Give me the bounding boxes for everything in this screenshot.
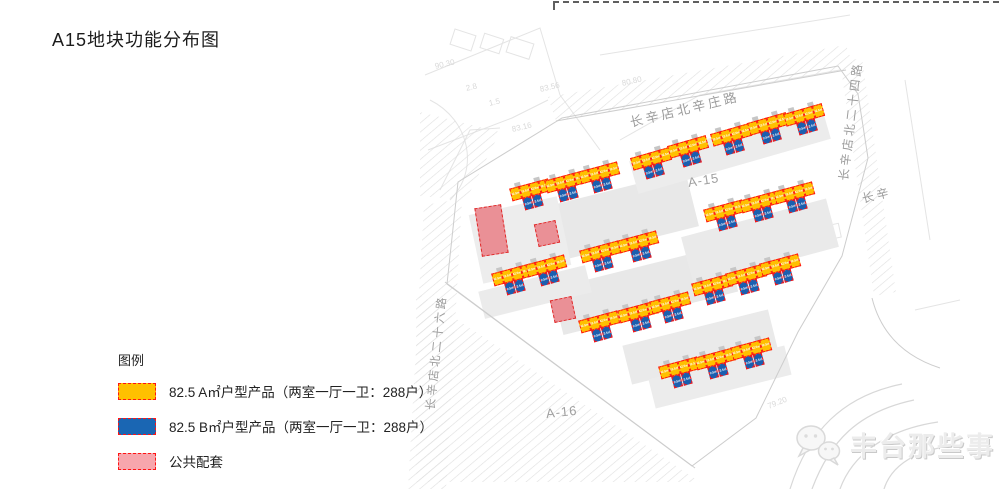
unit-area-label: 82.5㎡: [783, 273, 793, 278]
unit-area-label: 82.5㎡: [705, 296, 715, 301]
unit-area-label: 82.5㎡: [794, 113, 804, 118]
unit-area-label: 82.5㎡: [736, 273, 746, 278]
unit-area-label: 82.5㎡: [702, 283, 712, 288]
public-facility-block: [534, 220, 560, 247]
unit-area-label: 82.5㎡: [774, 194, 784, 199]
unit-area-label: 82.5㎡: [789, 258, 799, 263]
unit-area-label: 82.5㎡: [773, 276, 783, 281]
unit-area-label: 82.5㎡: [734, 143, 744, 148]
unit-area-label: 82.5㎡: [724, 207, 734, 212]
unit-area-label: 82.5㎡: [641, 157, 651, 162]
unit-area-label: 82.5㎡: [770, 263, 780, 268]
unit-area-label: 82.5㎡: [750, 200, 760, 205]
unit-area-label: 82.5㎡: [679, 364, 689, 369]
unit-block: 82.5㎡: [600, 176, 612, 191]
unit-area-label: 82.5㎡: [603, 260, 613, 265]
unit-area-label: 82.5㎡: [784, 116, 794, 121]
unit-block: 82.5㎡: [725, 214, 737, 229]
unit-area-label: 82.5㎡: [565, 178, 575, 183]
unit-area-label: 82.5㎡: [539, 277, 549, 282]
unit-area-label: 82.5㎡: [682, 376, 692, 381]
unit-block: 82.5㎡: [802, 182, 814, 197]
unit-area-label: 82.5㎡: [739, 286, 749, 291]
unit-area-label: 82.5㎡: [523, 201, 533, 206]
unit-area-label: 82.5㎡: [763, 210, 773, 215]
unit-area-label: 82.5㎡: [803, 186, 813, 191]
unit-area-label: 82.5㎡: [644, 170, 654, 175]
legend-item: 公共配套: [118, 451, 433, 471]
unit-area-label: 82.5㎡: [592, 333, 602, 338]
unit-area-label: 82.5㎡: [536, 264, 546, 269]
unit-area-label: 82.5㎡: [753, 213, 763, 218]
wechat-logo-icon: [793, 422, 843, 466]
unit-area-label: 82.5㎡: [804, 111, 814, 116]
unit-area-label: 82.5㎡: [751, 345, 761, 350]
unit-area-label: 82.5㎡: [748, 125, 758, 130]
legend-swatch: [118, 453, 156, 470]
unit-area-label: 82.5㎡: [717, 222, 727, 227]
unit-area-label: 82.5㎡: [660, 301, 670, 306]
unit-block: 82.5㎡: [600, 325, 612, 340]
unit-area-label: 82.5㎡: [641, 320, 651, 325]
unit-area-label: 82.5㎡: [754, 357, 764, 362]
unit-area-label: 82.5㎡: [654, 167, 664, 172]
unit-area-label: 82.5㎡: [638, 238, 648, 243]
unit-area-label: 82.5㎡: [545, 183, 555, 188]
unit-area-label: 82.5㎡: [761, 135, 771, 140]
unit-block: 82.5㎡: [781, 268, 793, 283]
legend-label: 82.5 A㎡户型产品（两室一厅一卫：288户）: [169, 381, 432, 401]
legend-label: 82.5 B㎡户型产品（两室一厅一卫：288户）: [169, 416, 433, 436]
unit-area-label: 82.5㎡: [502, 273, 512, 278]
unit-area-label: 82.5㎡: [731, 350, 741, 355]
unit-block: 82.5㎡: [716, 362, 728, 377]
unit-block: 82.5㎡: [652, 162, 665, 177]
unit-block: 82.5㎡: [805, 118, 818, 133]
unit-block: 82.5㎡: [795, 196, 807, 211]
unit-area-label: 82.5㎡: [807, 123, 817, 128]
unit-area-label: 82.5㎡: [727, 219, 737, 224]
unit-area-label: 82.5㎡: [780, 261, 790, 266]
unit-area-label: 82.5㎡: [530, 186, 540, 191]
watermark-text: 丰台那些事: [850, 425, 995, 464]
unit-block: 82.5㎡: [759, 338, 771, 353]
unit-block: 82.5㎡: [639, 245, 651, 260]
unit-block: 82.5㎡: [752, 352, 764, 367]
unit-area-label: 82.5㎡: [515, 283, 525, 288]
unit-area-label: 82.5㎡: [712, 281, 722, 286]
unit-area-label: 82.5㎡: [651, 155, 661, 160]
unit-area-label: 82.5㎡: [784, 191, 794, 196]
unit-area-label: 82.5㎡: [746, 271, 756, 276]
unit-area-label: 82.5㎡: [599, 169, 609, 174]
unit-area-label: 82.5㎡: [695, 360, 705, 365]
legend-items: 82.5 A㎡户型产品（两室一厅一卫：288户）82.5 B㎡户型产品（两室一厅…: [118, 381, 433, 471]
unit-area-label: 82.5㎡: [663, 314, 673, 319]
unit-area-label: 82.5㎡: [659, 369, 669, 374]
unit-area-label: 82.5㎡: [589, 320, 599, 325]
unit-area-label: 82.5㎡: [688, 143, 698, 148]
unit-block: 82.5㎡: [607, 162, 619, 177]
unit-area-label: 82.5㎡: [813, 108, 823, 113]
unit-area-label: 82.5㎡: [672, 379, 682, 384]
slide-canvas: A15地块功能分布图: [0, 0, 999, 489]
unit-block: 82.5㎡: [788, 254, 800, 269]
legend-label: 公共配套: [169, 451, 223, 471]
unit-area-label: 82.5㎡: [647, 235, 657, 240]
unit-area-label: 82.5㎡: [618, 313, 628, 318]
unit-block: 82.5㎡: [812, 103, 825, 118]
unit-area-label: 82.5㎡: [558, 193, 568, 198]
unit-block: 82.5㎡: [761, 205, 773, 220]
unit-area-label: 82.5㎡: [641, 250, 651, 255]
unit-area-label: 82.5㎡: [580, 253, 590, 258]
unit-block: 82.5㎡: [769, 127, 782, 142]
unit-area-label: 82.5㎡: [608, 166, 618, 171]
unit-area-label: 82.5㎡: [492, 276, 502, 281]
unit-area-label: 82.5㎡: [608, 315, 618, 320]
unit-block: 82.5㎡: [554, 255, 566, 270]
unit-block: 82.5㎡: [601, 255, 613, 270]
unit-area-label: 82.5㎡: [592, 184, 602, 189]
unit-area-label: 82.5㎡: [760, 198, 770, 203]
unit-area-label: 82.5㎡: [797, 201, 807, 206]
legend: 图例 82.5 A㎡户型产品（两室一厅一卫：288户）82.5 B㎡户型产品（两…: [118, 350, 433, 486]
unit-area-label: 82.5㎡: [714, 209, 724, 214]
legend-item: 82.5 B㎡户型产品（两室一厅一卫：288户）: [118, 416, 433, 436]
unit-area-label: 82.5㎡: [726, 276, 736, 281]
unit-area-label: 82.5㎡: [546, 262, 556, 267]
unit-area-label: 82.5㎡: [579, 174, 589, 179]
watermark: 丰台那些事: [793, 422, 995, 466]
unit-block: 82.5㎡: [646, 231, 658, 246]
unit-area-label: 82.5㎡: [758, 122, 768, 127]
public-facility-block: [550, 296, 576, 323]
unit-area-label: 82.5㎡: [631, 253, 641, 258]
unit-block: 82.5㎡: [732, 138, 745, 153]
unit-block: 82.5㎡: [671, 306, 683, 321]
unit-area-label: 82.5㎡: [631, 160, 641, 165]
unit-area-label: 82.5㎡: [555, 259, 565, 264]
unit-block: 82.5㎡: [680, 371, 692, 386]
unit-area-label: 82.5㎡: [715, 293, 725, 298]
unit-area-label: 82.5㎡: [505, 286, 515, 291]
unit-area-label: 82.5㎡: [668, 148, 678, 153]
legend-swatch: [118, 418, 156, 435]
unit-block: 82.5㎡: [513, 278, 525, 293]
unit-area-label: 82.5㎡: [740, 203, 750, 208]
unit-area-label: 82.5㎡: [731, 131, 741, 136]
unit-area-label: 82.5㎡: [715, 355, 725, 360]
unit-area-label: 82.5㎡: [768, 120, 778, 125]
unit-area-label: 82.5㎡: [549, 274, 559, 279]
unit-area-label: 82.5㎡: [692, 286, 702, 291]
unit-area-label: 82.5㎡: [520, 188, 530, 193]
unit-area-label: 82.5㎡: [638, 308, 648, 313]
unit-area-label: 82.5㎡: [760, 342, 770, 347]
legend-swatch: [118, 383, 156, 400]
unit-area-label: 82.5㎡: [678, 145, 688, 150]
unit-block: 82.5㎡: [696, 135, 709, 150]
unit-area-label: 82.5㎡: [708, 370, 718, 375]
unit-block: 82.5㎡: [713, 288, 725, 303]
unit-area-label: 82.5㎡: [631, 323, 641, 328]
unit-area-label: 82.5㎡: [579, 323, 589, 328]
unit-block: 82.5㎡: [678, 292, 690, 307]
unit-area-label: 82.5㎡: [718, 367, 728, 372]
unit-area-label: 82.5㎡: [590, 250, 600, 255]
unit-block: 82.5㎡: [689, 150, 702, 165]
unit-area-label: 82.5㎡: [600, 248, 610, 253]
unit-area-label: 82.5㎡: [679, 296, 689, 301]
unit-area-label: 82.5㎡: [533, 198, 543, 203]
unit-area-label: 82.5㎡: [593, 263, 603, 268]
unit-area-label: 82.5㎡: [691, 155, 701, 160]
unit-area-label: 82.5㎡: [711, 136, 721, 141]
unit-area-label: 82.5㎡: [760, 266, 770, 271]
unit-area-label: 82.5㎡: [787, 204, 797, 209]
unit-area-label: 82.5㎡: [618, 243, 628, 248]
unit-area-label: 82.5㎡: [771, 132, 781, 137]
legend-heading: 图例: [118, 350, 433, 369]
unit-area-label: 82.5㎡: [744, 360, 754, 365]
unit-area-label: 82.5㎡: [568, 190, 578, 195]
unit-area-label: 82.5㎡: [749, 283, 759, 288]
unit-block: 82.5㎡: [531, 193, 543, 208]
unit-area-label: 82.5㎡: [628, 240, 638, 245]
unit-area-label: 82.5㎡: [510, 191, 520, 196]
unit-area-label: 82.5㎡: [512, 271, 522, 276]
unit-area-label: 82.5㎡: [669, 366, 679, 371]
unit-area-label: 82.5㎡: [704, 212, 714, 217]
unit-area-label: 82.5㎡: [681, 158, 691, 163]
unit-area-label: 82.5㎡: [526, 267, 536, 272]
unit-area-label: 82.5㎡: [721, 133, 731, 138]
unit-block: 82.5㎡: [547, 269, 559, 284]
unit-block: 82.5㎡: [566, 185, 578, 200]
unit-area-label: 82.5㎡: [797, 126, 807, 131]
unit-area-label: 82.5㎡: [599, 318, 609, 323]
unit-area-label: 82.5㎡: [670, 299, 680, 304]
unit-block: 82.5㎡: [639, 315, 651, 330]
unit-area-label: 82.5㎡: [602, 181, 612, 186]
unit-area-label: 82.5㎡: [628, 310, 638, 315]
unit-area-label: 82.5㎡: [794, 189, 804, 194]
unit-block: 82.5㎡: [747, 278, 759, 293]
unit-area-label: 82.5㎡: [602, 330, 612, 335]
legend-item: 82.5 A㎡户型产品（两室一厅一卫：288户）: [118, 381, 433, 401]
unit-area-label: 82.5㎡: [555, 180, 565, 185]
unit-area-label: 82.5㎡: [673, 311, 683, 316]
unit-area-label: 82.5㎡: [705, 357, 715, 362]
unit-area-label: 82.5㎡: [697, 140, 707, 145]
unit-area-label: 82.5㎡: [589, 171, 599, 176]
unit-area-label: 82.5㎡: [724, 146, 734, 151]
unit-area-label: 82.5㎡: [650, 304, 660, 309]
unit-area-label: 82.5㎡: [741, 347, 751, 352]
